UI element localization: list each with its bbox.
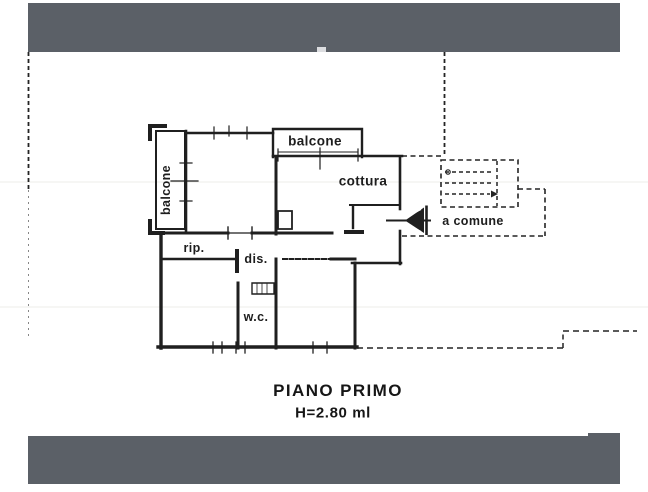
floor-plan-page: balcone balcone cottura rip. dis. w.c. a…: [0, 0, 648, 492]
walls: [150, 126, 402, 353]
room-label-balcone-left: balcone: [159, 165, 173, 215]
room-label-balcone-top: balcone: [288, 134, 342, 149]
room-label-cottura: cottura: [339, 174, 388, 189]
dashed-boundary-lines: [29, 52, 638, 348]
scan-artifact-lines: [0, 182, 648, 307]
entrance-door-icon: [386, 206, 431, 236]
floor-caption-title: PIANO PRIMO: [273, 381, 403, 401]
room-label-wc: w.c.: [244, 310, 269, 324]
room-label-rip: rip.: [183, 241, 204, 255]
floor-caption-height: H=2.80 ml: [295, 405, 371, 422]
room-label-dis: dis.: [244, 252, 267, 266]
area-label-a-comune: a comune: [442, 214, 504, 228]
